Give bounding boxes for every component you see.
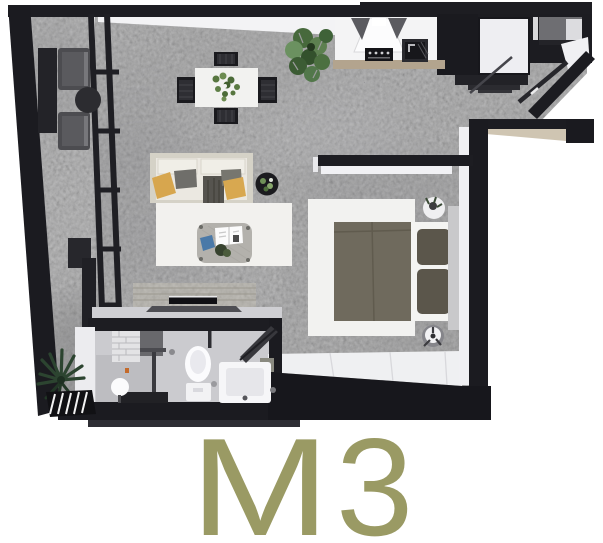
svg-text:3: 3	[336, 410, 413, 543]
svg-text:M: M	[190, 410, 330, 543]
